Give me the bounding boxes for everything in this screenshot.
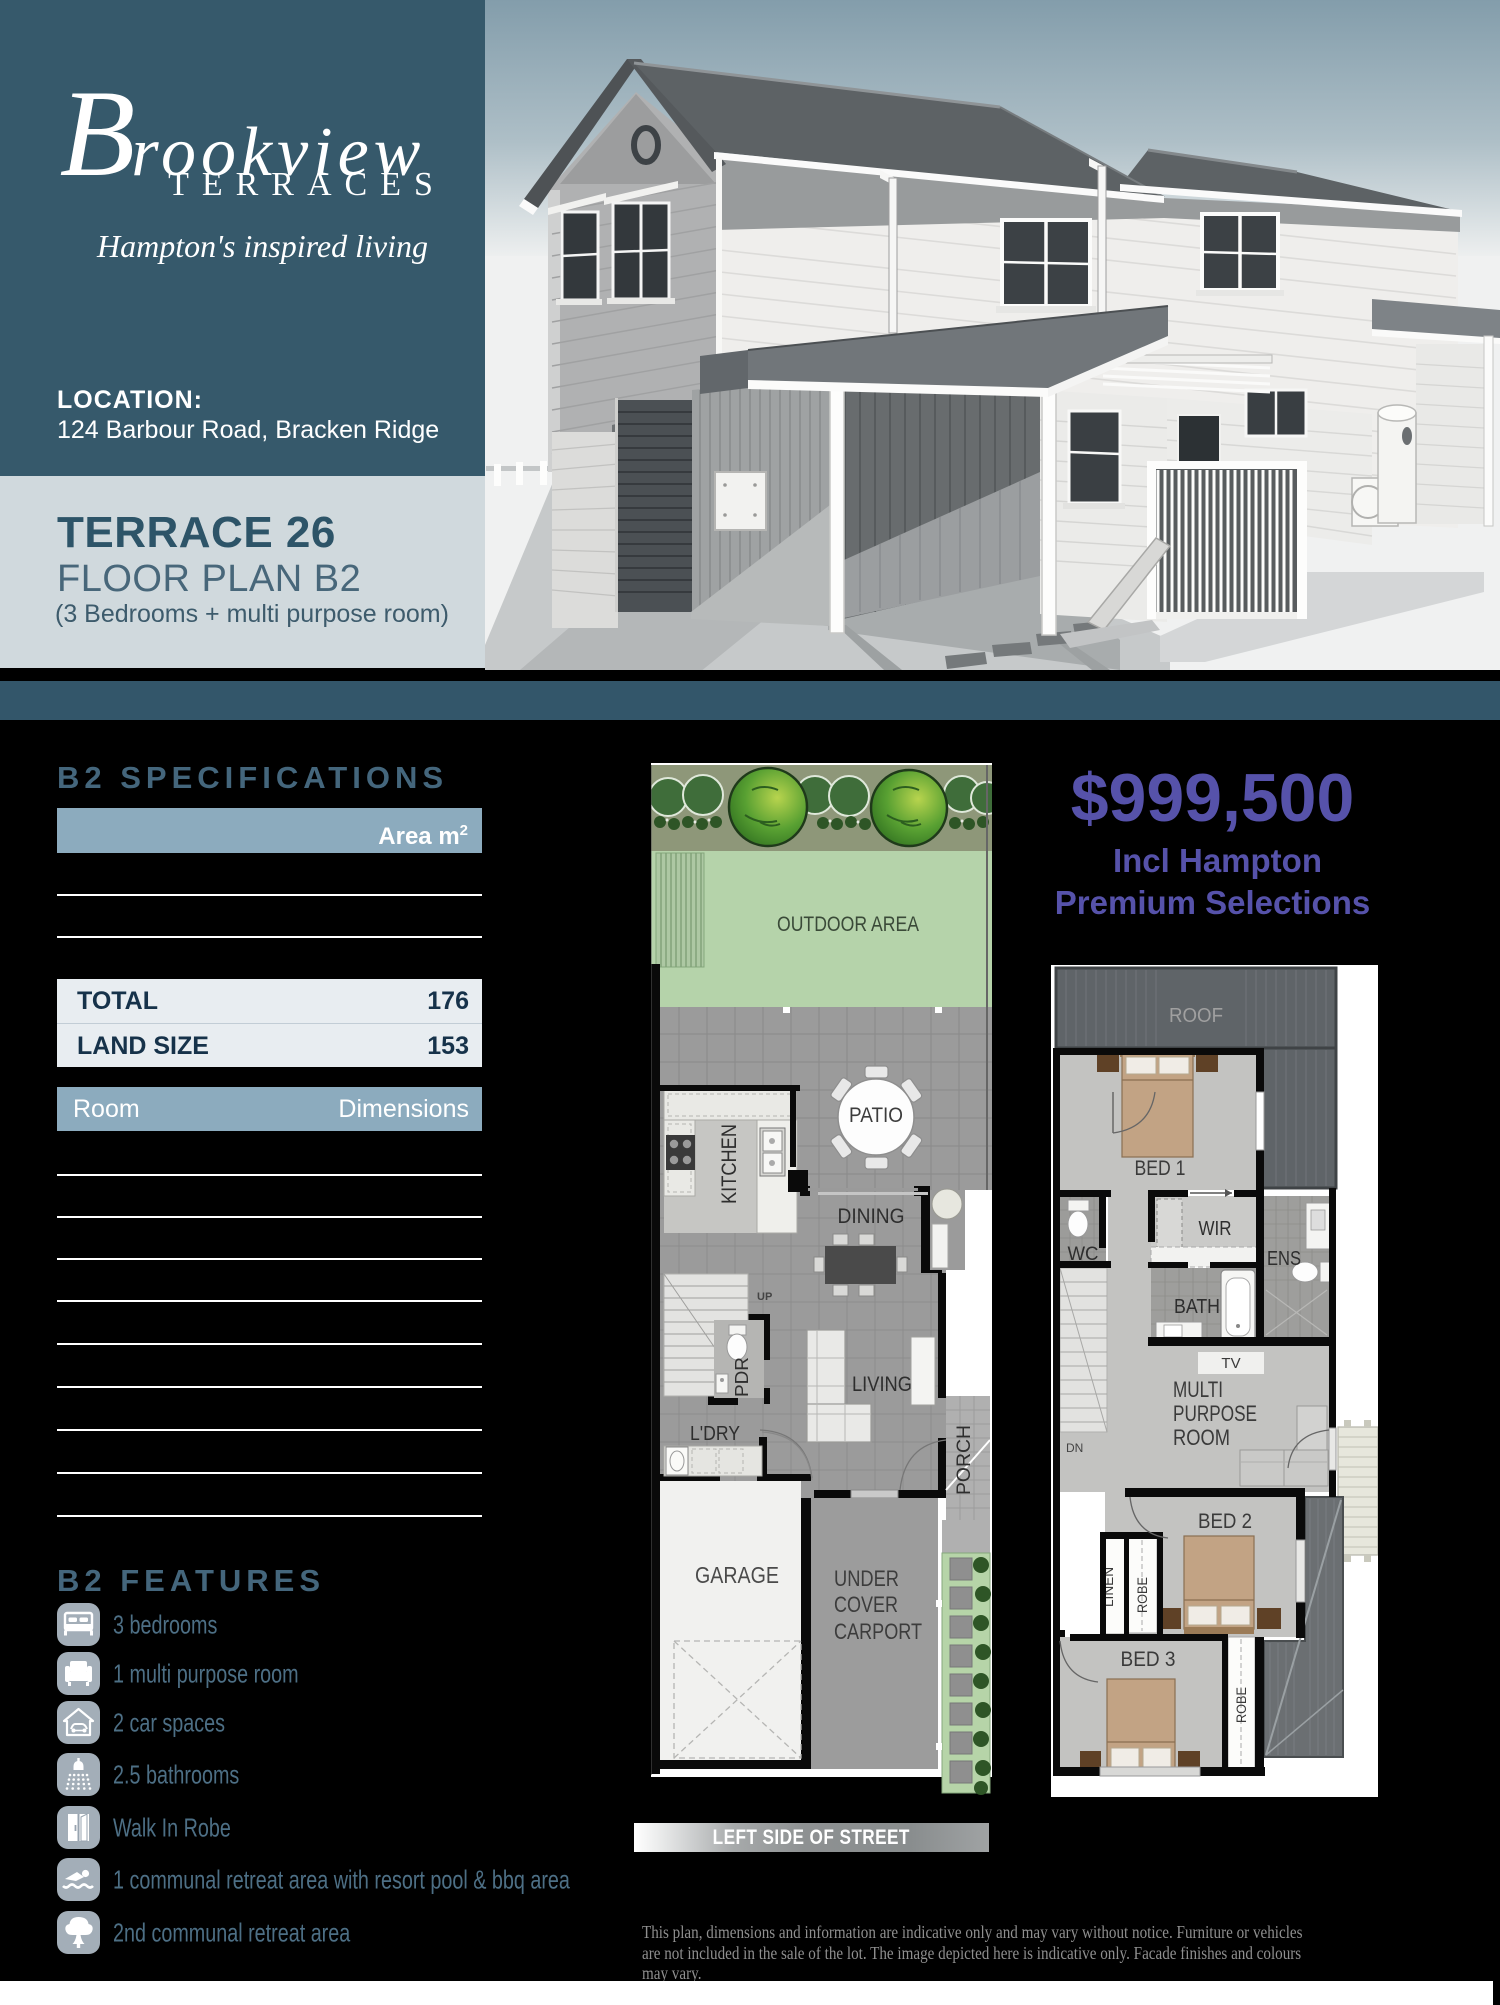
svg-text:UNDER: UNDER	[834, 1566, 899, 1591]
svg-text:OUTDOOR AREA: OUTDOOR AREA	[777, 913, 919, 936]
svg-text:BED 3: BED 3	[1121, 1648, 1176, 1671]
svg-text:MULTI: MULTI	[1173, 1377, 1223, 1402]
svg-text:BED 1: BED 1	[1135, 1157, 1186, 1180]
svg-text:GARAGE: GARAGE	[695, 1562, 779, 1588]
svg-text:PATIO: PATIO	[849, 1104, 903, 1127]
svg-text:BATH: BATH	[1174, 1296, 1220, 1318]
svg-text:ROOF: ROOF	[1169, 1005, 1223, 1027]
svg-text:PDR: PDR	[732, 1357, 752, 1397]
svg-text:ROBE: ROBE	[1134, 1577, 1150, 1613]
svg-text:DN: DN	[1066, 1441, 1083, 1455]
svg-text:PURPOSE: PURPOSE	[1173, 1401, 1257, 1426]
svg-text:CARPORT: CARPORT	[834, 1619, 922, 1644]
svg-text:ROBE: ROBE	[1233, 1687, 1249, 1723]
svg-text:ROOM: ROOM	[1173, 1425, 1230, 1450]
svg-text:BED 2: BED 2	[1198, 1510, 1252, 1533]
svg-text:KITCHEN: KITCHEN	[718, 1124, 741, 1204]
svg-text:COVER: COVER	[834, 1592, 898, 1617]
svg-text:TV: TV	[1221, 1355, 1240, 1372]
svg-text:WIR: WIR	[1199, 1218, 1232, 1240]
svg-text:DINING: DINING	[838, 1205, 905, 1228]
svg-text:PORCH: PORCH	[954, 1425, 975, 1495]
svg-text:L'DRY: L'DRY	[690, 1423, 740, 1445]
svg-text:ENS: ENS	[1267, 1248, 1301, 1270]
svg-text:UP: UP	[757, 1291, 772, 1303]
svg-text:LIVING: LIVING	[852, 1373, 912, 1396]
